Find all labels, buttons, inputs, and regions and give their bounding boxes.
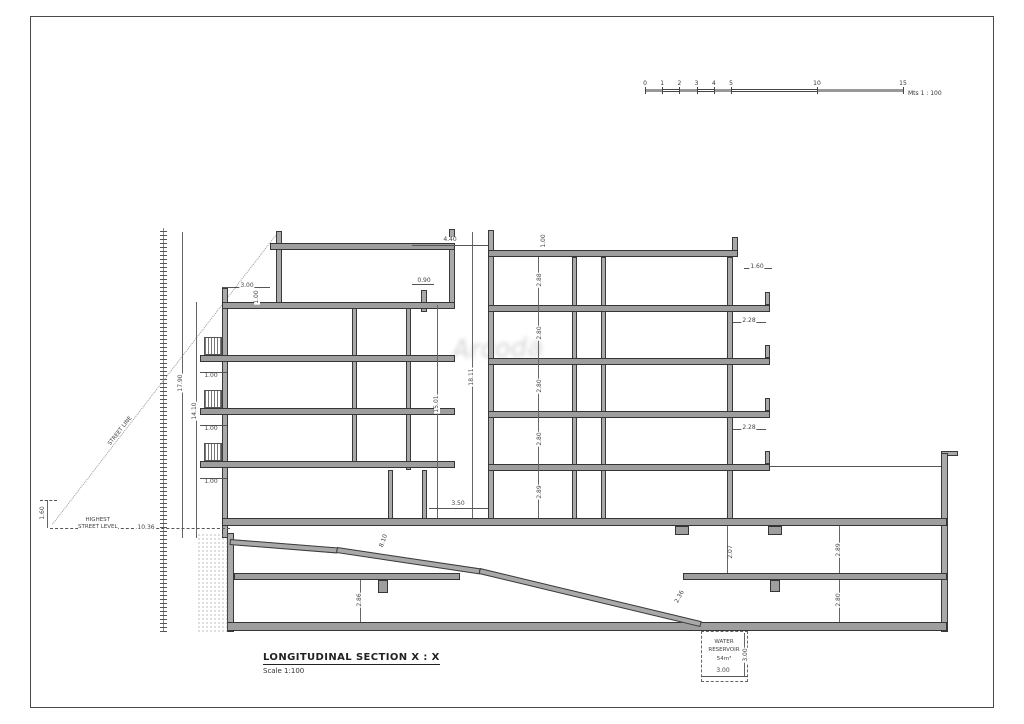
dimension-label: 2.07 (728, 544, 734, 559)
scale-bar-segment (714, 89, 731, 92)
dimension-label: 2.80 (537, 378, 543, 393)
scale-bar-segment (679, 89, 696, 92)
level-line (40, 500, 57, 501)
basement-slab (683, 573, 947, 580)
dim-line (412, 284, 434, 285)
column-stub (378, 580, 388, 593)
balcony-rail (765, 451, 770, 464)
scale-tick (645, 87, 646, 94)
balcony-railing-hatch (204, 337, 222, 355)
floor-slab (488, 464, 770, 471)
scale-unit-label: Mts 1 : 100 (908, 90, 942, 97)
dimension-label: 2.89 (537, 484, 543, 499)
water-reservoir-label: WATER RESERVOIR 54m³ (704, 638, 744, 663)
floor-slab (200, 355, 455, 362)
scale-tick (714, 87, 715, 94)
wall (352, 308, 357, 468)
dim-line (412, 245, 488, 246)
dimension-label: 0.90 (416, 278, 431, 284)
dimension-label: 2.80 (537, 431, 543, 446)
basement-slab (234, 573, 460, 580)
column-stub (770, 580, 780, 592)
balcony-railing-hatch (204, 390, 222, 408)
dimension-label: 3.00 (743, 647, 749, 662)
hsl-line1: HIGHEST (78, 517, 118, 524)
hsl-line2: STREET LEVEL (78, 524, 118, 531)
dimension-label: 2.28 (741, 318, 756, 324)
scale-tick (731, 87, 732, 94)
balcony-rail (765, 292, 770, 305)
boundary-rod-line (160, 228, 167, 632)
dimension-label: 1.00 (254, 289, 260, 304)
scale-tick (697, 87, 698, 94)
balcony-rail (765, 398, 770, 411)
dimension-label: 2.80 (836, 592, 842, 607)
scale-tick-label: 2 (677, 80, 681, 87)
floor-slab (200, 461, 455, 468)
wall (422, 470, 427, 520)
highest-street-level-label: HIGHEST STREET LEVEL (78, 517, 118, 530)
wall (488, 230, 494, 522)
scale-tick-label: 4 (712, 80, 716, 87)
scale-bar-segment (817, 89, 903, 92)
scale-bar-segment (645, 89, 662, 92)
beam-downstand (768, 526, 782, 535)
scale-tick (903, 87, 904, 94)
beam-downstand (675, 526, 689, 535)
floor-slab (200, 408, 455, 415)
floor-slab (488, 305, 770, 312)
wall (406, 308, 411, 470)
scale-tick-label: 1 (660, 80, 664, 87)
retaining-wall (941, 453, 948, 632)
wall (388, 470, 393, 520)
reservoir-label-line1: WATER (704, 638, 744, 646)
scale-bar: 0123451015 Mts 1 : 100 (645, 80, 945, 100)
balcony-railing-hatch (204, 443, 222, 461)
scale-tick (662, 87, 663, 94)
dimension-label: 3.00 (715, 668, 730, 674)
wall (601, 257, 606, 522)
dimension-label: 2.86 (357, 592, 363, 607)
reservoir-label-line3: 54m³ (704, 655, 744, 663)
dimension-label: 3.00 (239, 283, 254, 289)
scale-tick-label: 15 (899, 80, 907, 87)
dim-line (47, 500, 48, 528)
dimension-label: 2.80 (537, 325, 543, 340)
foundation-slab (227, 622, 947, 631)
wall (572, 257, 577, 522)
dimension-label: 1.00 (203, 426, 218, 432)
wall (727, 257, 733, 522)
dim-line (429, 508, 488, 509)
scale-tick (679, 87, 680, 94)
dimension-label: 1.60 (749, 264, 764, 270)
scale-tick-label: 5 (729, 80, 733, 87)
dimension-label: 17.90 (178, 373, 184, 392)
scale-tick (817, 87, 818, 94)
dimension-label: 1.00 (203, 373, 218, 379)
floor-slab (488, 411, 770, 418)
scale-tick-label: 3 (695, 80, 699, 87)
reservoir-label-line2: RESERVOIR (704, 646, 744, 654)
dimension-label: 3.50 (450, 501, 465, 507)
dimension-label: 1.00 (541, 233, 547, 248)
retaining-wall (227, 533, 234, 632)
dimension-label: 2.89 (836, 542, 842, 557)
dimension-label: 10.36 (136, 525, 155, 531)
balcony-rail (765, 345, 770, 358)
dimension-label: 1.60 (40, 505, 46, 520)
scale-tick-label: 10 (813, 80, 821, 87)
drawing-scale-note: Scale 1:100 (263, 667, 304, 675)
dimension-label: 2.88 (537, 272, 543, 287)
drawing-title: LONGITUDINAL SECTION X : X (263, 652, 440, 665)
scale-tick-label: 0 (643, 80, 647, 87)
dimension-label: 15.01 (434, 394, 440, 413)
dimension-label: 2.28 (741, 425, 756, 431)
terrace-line (770, 466, 941, 467)
drawing-sheet: 0123451015 Mts 1 : 100 Arcoda STREET LIN… (0, 0, 1024, 724)
dimension-label: 18.11 (469, 367, 475, 386)
dimension-label: 14.10 (192, 401, 198, 420)
roof-slab (488, 250, 738, 257)
floor-slab (488, 358, 770, 365)
dimension-label: 4.40 (442, 237, 457, 243)
ground-slab (222, 518, 947, 526)
earth-hatch (197, 533, 228, 632)
dimension-label: 1.00 (203, 479, 218, 485)
